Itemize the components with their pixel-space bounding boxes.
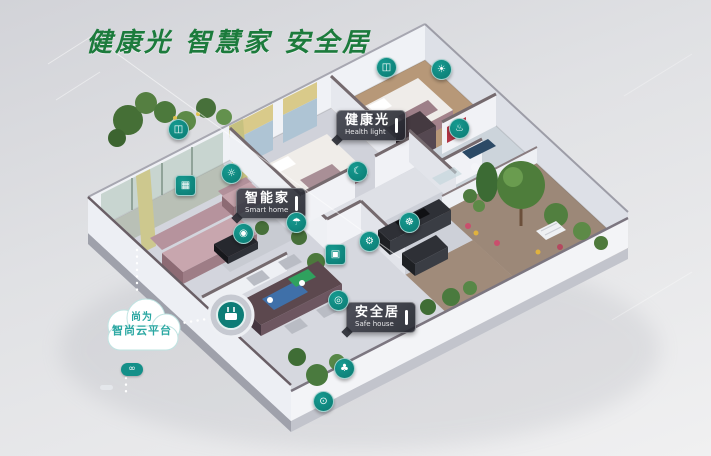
tag-health-light-en: Health light — [345, 128, 390, 136]
ceiling-light-icon: ☀ — [431, 59, 452, 80]
tag-safe-house: 安全居 Safe house — [346, 302, 416, 333]
floor-lamp-glyph: ◉ — [239, 229, 248, 239]
irrigation-sensor-icon: ♣ — [334, 358, 355, 379]
tag-pointer-bar-icon — [395, 118, 398, 133]
door-window-sensor-glyph: ▣ — [331, 250, 340, 260]
tag-pointer-bar-icon — [405, 310, 408, 325]
exhaust-fan-icon: ☸ — [399, 212, 420, 233]
bed-sensor-icon: ☾ — [347, 161, 368, 182]
tag-health-light: 健康光 Health light — [336, 110, 406, 141]
humidity-sensor-glyph: ☂ — [292, 218, 301, 228]
poster-canvas: 健康光 智慧家 安全居 健康光 Health light 智能家 Smart h… — [0, 0, 711, 456]
cloud-line1: 尚为 — [94, 312, 190, 324]
video-doorbell-glyph: ⊙ — [319, 397, 327, 407]
curtain-bedroom-icon: ◫ — [376, 57, 397, 78]
door-window-sensor-icon: ▣ — [325, 244, 346, 265]
smart-gateway-badge — [207, 291, 255, 339]
humidity-sensor-icon: ☂ — [286, 212, 307, 233]
wall-light-glyph: ☼ — [227, 169, 236, 179]
floor-lamp-icon: ◉ — [233, 223, 254, 244]
tag-smart-home-text: 智能家 Smart home — [245, 192, 290, 214]
tag-smart-home-en: Smart home — [245, 206, 290, 214]
bed-sensor-glyph: ☾ — [353, 167, 362, 177]
wall-light-icon: ☼ — [221, 163, 242, 184]
page-title: 健康光 智慧家 安全居 — [86, 22, 371, 59]
water-heater-glyph: ♨ — [455, 124, 464, 134]
ceiling-light-glyph: ☀ — [437, 65, 446, 75]
gateway-icon — [207, 291, 255, 339]
tag-health-light-text: 健康光 Health light — [345, 114, 390, 136]
curtain-living-icon: ◫ — [168, 119, 189, 140]
curtain-bedroom-glyph: ◫ — [382, 63, 391, 73]
motion-sensor-glyph: ◎ — [334, 296, 343, 306]
curtain-living-glyph: ◫ — [174, 125, 183, 135]
exhaust-fan-glyph: ☸ — [405, 218, 414, 228]
balcony-plants — [154, 98, 232, 131]
scene-panel-icon: ▦ — [175, 175, 196, 196]
motion-sensor-icon: ◎ — [328, 290, 349, 311]
water-heater-icon: ♨ — [449, 118, 470, 139]
cloud-platform: 尚为 智尚云平台 — [94, 298, 190, 360]
gas-valve-glyph: ⚙ — [365, 237, 374, 247]
cloud-platform-text: 尚为 智尚云平台 — [94, 312, 190, 338]
exterior-trees — [108, 92, 157, 147]
tag-pointer-bar-icon — [295, 196, 298, 211]
tag-safe-house-text: 安全居 Safe house — [355, 306, 400, 328]
tag-health-light-zh: 健康光 — [345, 114, 390, 128]
video-doorbell-icon: ⊙ — [313, 391, 334, 412]
tag-safe-house-en: Safe house — [355, 320, 400, 328]
small-marker — [100, 385, 113, 390]
irrigation-sensor-glyph: ♣ — [340, 364, 349, 374]
cloud-line2: 智尚云平台 — [94, 324, 190, 338]
scene-panel-glyph: ▦ — [181, 181, 190, 191]
tag-safe-house-zh: 安全居 — [355, 306, 400, 320]
tag-smart-home-zh: 智能家 — [245, 192, 290, 206]
link-icon: ∞ — [121, 363, 143, 376]
floorplan-scene — [0, 0, 711, 456]
gas-valve-icon: ⚙ — [359, 231, 380, 252]
